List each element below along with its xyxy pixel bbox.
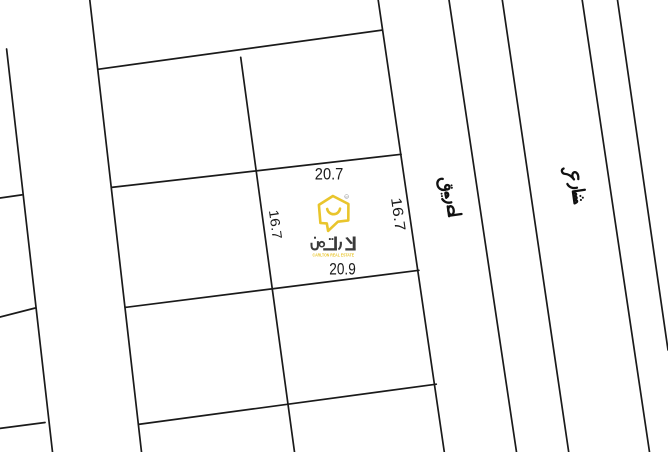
svg-text:16.7: 16.7 <box>266 209 285 240</box>
svg-text:20.9: 20.9 <box>329 259 356 278</box>
svg-text:20.7: 20.7 <box>315 165 344 184</box>
svg-text:CARLTON REAL ESTATE: CARLTON REAL ESTATE <box>313 253 355 258</box>
svg-text:16.7: 16.7 <box>387 197 408 232</box>
